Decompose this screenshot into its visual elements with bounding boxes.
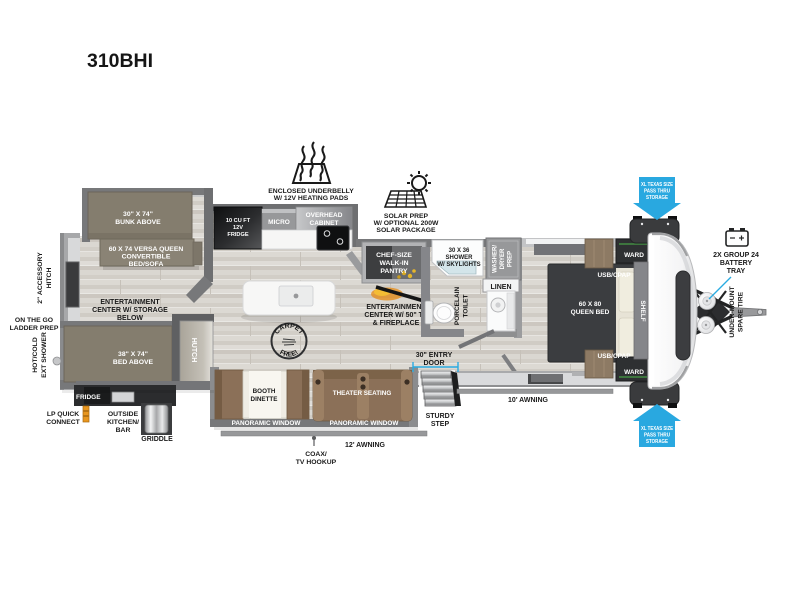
svg-text:WALK-IN: WALK-IN: [379, 260, 408, 267]
svg-text:30 X 36: 30 X 36: [449, 248, 470, 254]
svg-text:SOLAR PACKAGE: SOLAR PACKAGE: [376, 227, 436, 234]
svg-text:10' AWNING: 10' AWNING: [508, 397, 548, 404]
svg-text:CONNECT: CONNECT: [46, 419, 80, 426]
svg-text:DINETTE: DINETTE: [251, 396, 278, 403]
svg-text:DOOR: DOOR: [424, 360, 445, 367]
svg-text:FRIDGE: FRIDGE: [76, 394, 101, 401]
svg-text:OVERHEAD: OVERHEAD: [306, 212, 343, 219]
svg-text:PASS THRU: PASS THRU: [644, 189, 670, 195]
svg-text:TRAY: TRAY: [727, 268, 746, 275]
svg-text:SHOWER: SHOWER: [446, 255, 474, 261]
svg-text:PASS THRU: PASS THRU: [644, 433, 670, 439]
svg-text:ENCLOSED UNDERBELLY: ENCLOSED UNDERBELLY: [268, 188, 354, 195]
svg-text:12' AWNING: 12' AWNING: [345, 442, 385, 449]
svg-text:USB/CPAP: USB/CPAP: [597, 272, 631, 279]
svg-text:SHELF: SHELF: [639, 300, 646, 321]
svg-text:310BHI: 310BHI: [87, 51, 153, 72]
svg-text:XL TEXAS SIZE: XL TEXAS SIZE: [641, 426, 674, 432]
svg-text:30" X 74": 30" X 74": [123, 211, 153, 218]
svg-text:CHEF-SIZE: CHEF-SIZE: [376, 252, 412, 259]
svg-text:38" X 74": 38" X 74": [118, 351, 148, 358]
svg-text:LADDER PREP: LADDER PREP: [10, 325, 59, 332]
svg-text:COAX/: COAX/: [305, 451, 327, 458]
svg-text:BED/SOFA: BED/SOFA: [129, 261, 164, 268]
svg-text:FRIDGE: FRIDGE: [227, 232, 248, 238]
svg-text:& FIREPLACE: & FIREPLACE: [373, 320, 420, 327]
svg-text:ON THE GO: ON THE GO: [15, 317, 53, 324]
svg-text:W/ OPTIONAL 200W: W/ OPTIONAL 200W: [374, 220, 439, 227]
svg-text:BELOW: BELOW: [117, 315, 143, 322]
svg-text:W/ 12V HEATING PADS: W/ 12V HEATING PADS: [274, 195, 349, 202]
svg-text:STEP: STEP: [431, 421, 450, 428]
svg-text:OUTSIDE: OUTSIDE: [108, 411, 139, 418]
svg-text:HUTCH: HUTCH: [190, 338, 197, 363]
svg-text:GRIDDLE: GRIDDLE: [141, 436, 173, 443]
svg-text:PANORAMIC WINDOW: PANORAMIC WINDOW: [330, 420, 400, 427]
svg-text:UNDER-MOUNTSPARE TIRE: UNDER-MOUNTSPARE TIRE: [729, 285, 745, 337]
svg-text:60 X 74 VERSA QUEEN: 60 X 74 VERSA QUEEN: [109, 246, 184, 253]
svg-text:BAR: BAR: [116, 427, 131, 434]
svg-text:WARD: WARD: [624, 252, 644, 259]
svg-text:12V: 12V: [233, 225, 243, 231]
svg-text:ENTERTAINMENT: ENTERTAINMENT: [366, 304, 426, 311]
svg-text:STURDY: STURDY: [426, 413, 455, 420]
svg-text:10 CU FT: 10 CU FT: [226, 218, 251, 224]
svg-text:30" ENTRY: 30" ENTRY: [416, 352, 453, 359]
svg-text:THEATER SEATING: THEATER SEATING: [333, 390, 392, 397]
svg-text:STORAGE: STORAGE: [646, 195, 669, 201]
svg-text:MICRO: MICRO: [268, 219, 290, 226]
svg-text:USB/CPAP: USB/CPAP: [597, 353, 631, 360]
svg-text:STORAGE: STORAGE: [646, 439, 669, 445]
svg-text:BUNK ABOVE: BUNK ABOVE: [115, 219, 161, 226]
svg-text:PANORAMIC WINDOW: PANORAMIC WINDOW: [232, 420, 302, 427]
svg-text:PANTRY: PANTRY: [380, 268, 408, 275]
svg-text:LP QUICK: LP QUICK: [47, 411, 79, 418]
svg-text:CENTER W/ 50" TV: CENTER W/ 50" TV: [364, 312, 428, 319]
svg-text:2X GROUP 24: 2X GROUP 24: [713, 252, 759, 259]
svg-text:QUEEN BED: QUEEN BED: [571, 309, 610, 316]
svg-text:WARD: WARD: [624, 369, 644, 376]
svg-text:LINEN: LINEN: [491, 284, 512, 291]
svg-text:W/ SKYLIGHTS: W/ SKYLIGHTS: [437, 262, 480, 268]
svg-text:BATTERY: BATTERY: [720, 260, 753, 267]
svg-text:XL TEXAS SIZE: XL TEXAS SIZE: [641, 182, 674, 188]
svg-text:CONVERTIBLE: CONVERTIBLE: [122, 254, 171, 261]
svg-text:SOLAR PREP: SOLAR PREP: [384, 213, 429, 220]
svg-text:CENTER W/ STORAGE: CENTER W/ STORAGE: [92, 307, 168, 314]
svg-text:BOOTH: BOOTH: [253, 388, 276, 395]
svg-text:TV HOOKUP: TV HOOKUP: [296, 459, 337, 466]
svg-text:60 X 80: 60 X 80: [579, 301, 602, 308]
svg-text:BED ABOVE: BED ABOVE: [113, 359, 154, 366]
svg-text:KITCHEN/: KITCHEN/: [107, 419, 139, 426]
svg-text:ENTERTAINMENT: ENTERTAINMENT: [100, 299, 160, 306]
